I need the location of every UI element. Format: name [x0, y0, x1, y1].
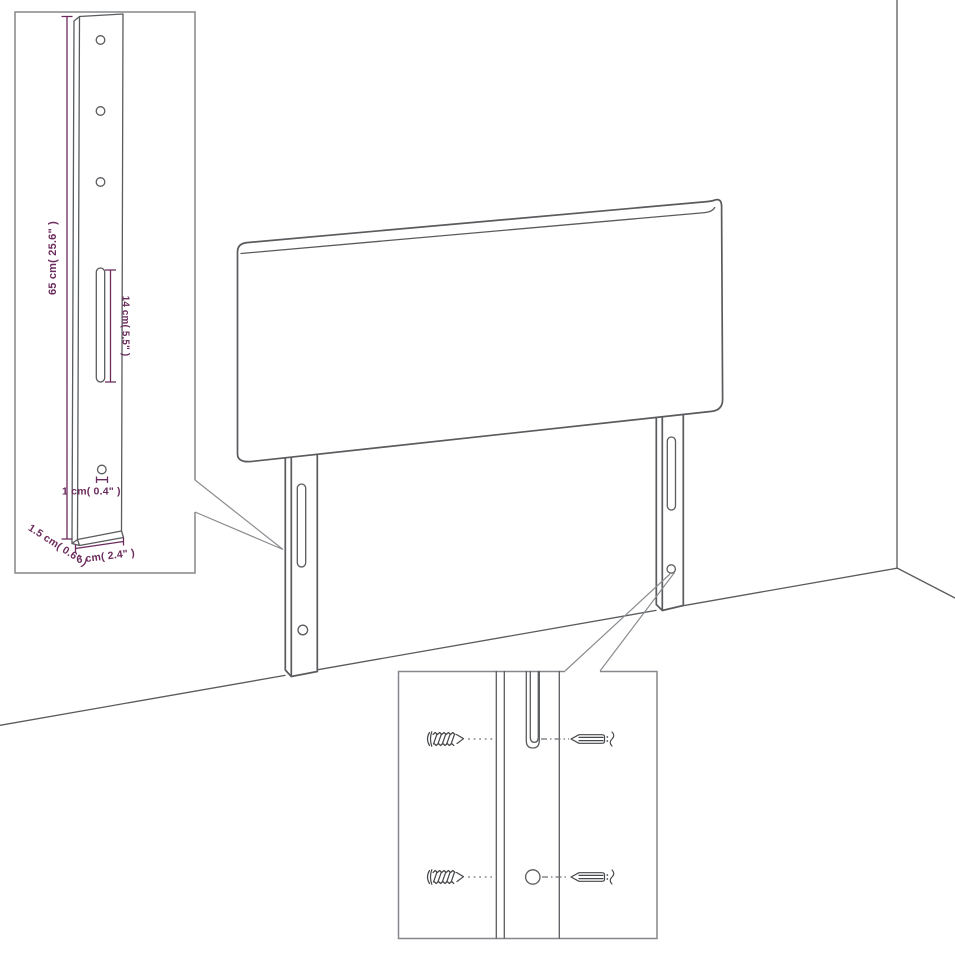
hardware-row-slot — [428, 732, 614, 747]
headboard-panel — [238, 200, 723, 462]
dim-height-line — [62, 17, 73, 540]
strut-detail-inset: 65 cm( 25.6" ) 14 cm( 5.5" ) 1 cm( 0.4" … — [15, 12, 283, 573]
headboard-right-leg — [656, 415, 683, 611]
strut-inset-leader-lines — [195, 480, 283, 550]
screw-icon — [428, 732, 464, 747]
floor-edge-right — [897, 568, 955, 598]
dim-slot-label: 14 cm( 5.5" ) — [120, 296, 131, 357]
headboard-left-leg — [285, 455, 317, 677]
right-leg-outline — [656, 415, 683, 611]
floor-edge-left — [0, 568, 897, 725]
dim-hole-label: 1 cm( 0.4" ) — [62, 486, 121, 498]
right-leg-hole — [667, 565, 675, 573]
strut-drawing — [72, 14, 124, 546]
strip-edges — [496, 672, 559, 939]
wall-plug-icon — [571, 870, 614, 884]
dim-hole-bracket — [97, 477, 108, 484]
mounting-inset-leader-lines — [565, 573, 675, 672]
panel-outline — [238, 200, 723, 462]
mounting-detail-inset — [399, 573, 675, 939]
hardware-row-hole — [428, 870, 614, 885]
strut-hole-1 — [96, 36, 105, 45]
strut-outline — [72, 14, 124, 546]
strut-hole-3 — [96, 178, 105, 187]
dim-height-label: 65 cm( 25.6" ) — [47, 221, 59, 295]
dim-slot-line — [105, 270, 116, 382]
strip-slot-inner — [530, 672, 538, 743]
left-leg-outline — [285, 455, 317, 677]
left-leg-hole — [298, 625, 308, 635]
leg-strip-closeup — [496, 672, 559, 939]
right-leg-slot — [667, 437, 675, 510]
strip-slot-outer — [526, 672, 539, 749]
product-diagram: 65 cm( 25.6" ) 14 cm( 5.5" ) 1 cm( 0.4" … — [0, 0, 955, 955]
strut-hole-2 — [96, 107, 105, 116]
dim-width-label: 6 cm( 2.4" ) — [76, 547, 136, 566]
strut-dimensions: 65 cm( 25.6" ) 14 cm( 5.5" ) 1 cm( 0.4" … — [26, 17, 136, 570]
left-leg-slot — [297, 484, 305, 567]
diagram-canvas: 65 cm( 25.6" ) 14 cm( 5.5" ) 1 cm( 0.4" … — [0, 0, 955, 955]
mounting-inset-border — [399, 672, 658, 939]
strip-hole — [526, 870, 540, 884]
room-corner — [0, 0, 955, 725]
wall-plug-icon — [571, 732, 614, 746]
strut-slot — [96, 268, 104, 382]
screw-icon — [428, 870, 464, 885]
strut-small-hole — [98, 465, 107, 474]
panel-top-edge-line — [241, 208, 715, 254]
